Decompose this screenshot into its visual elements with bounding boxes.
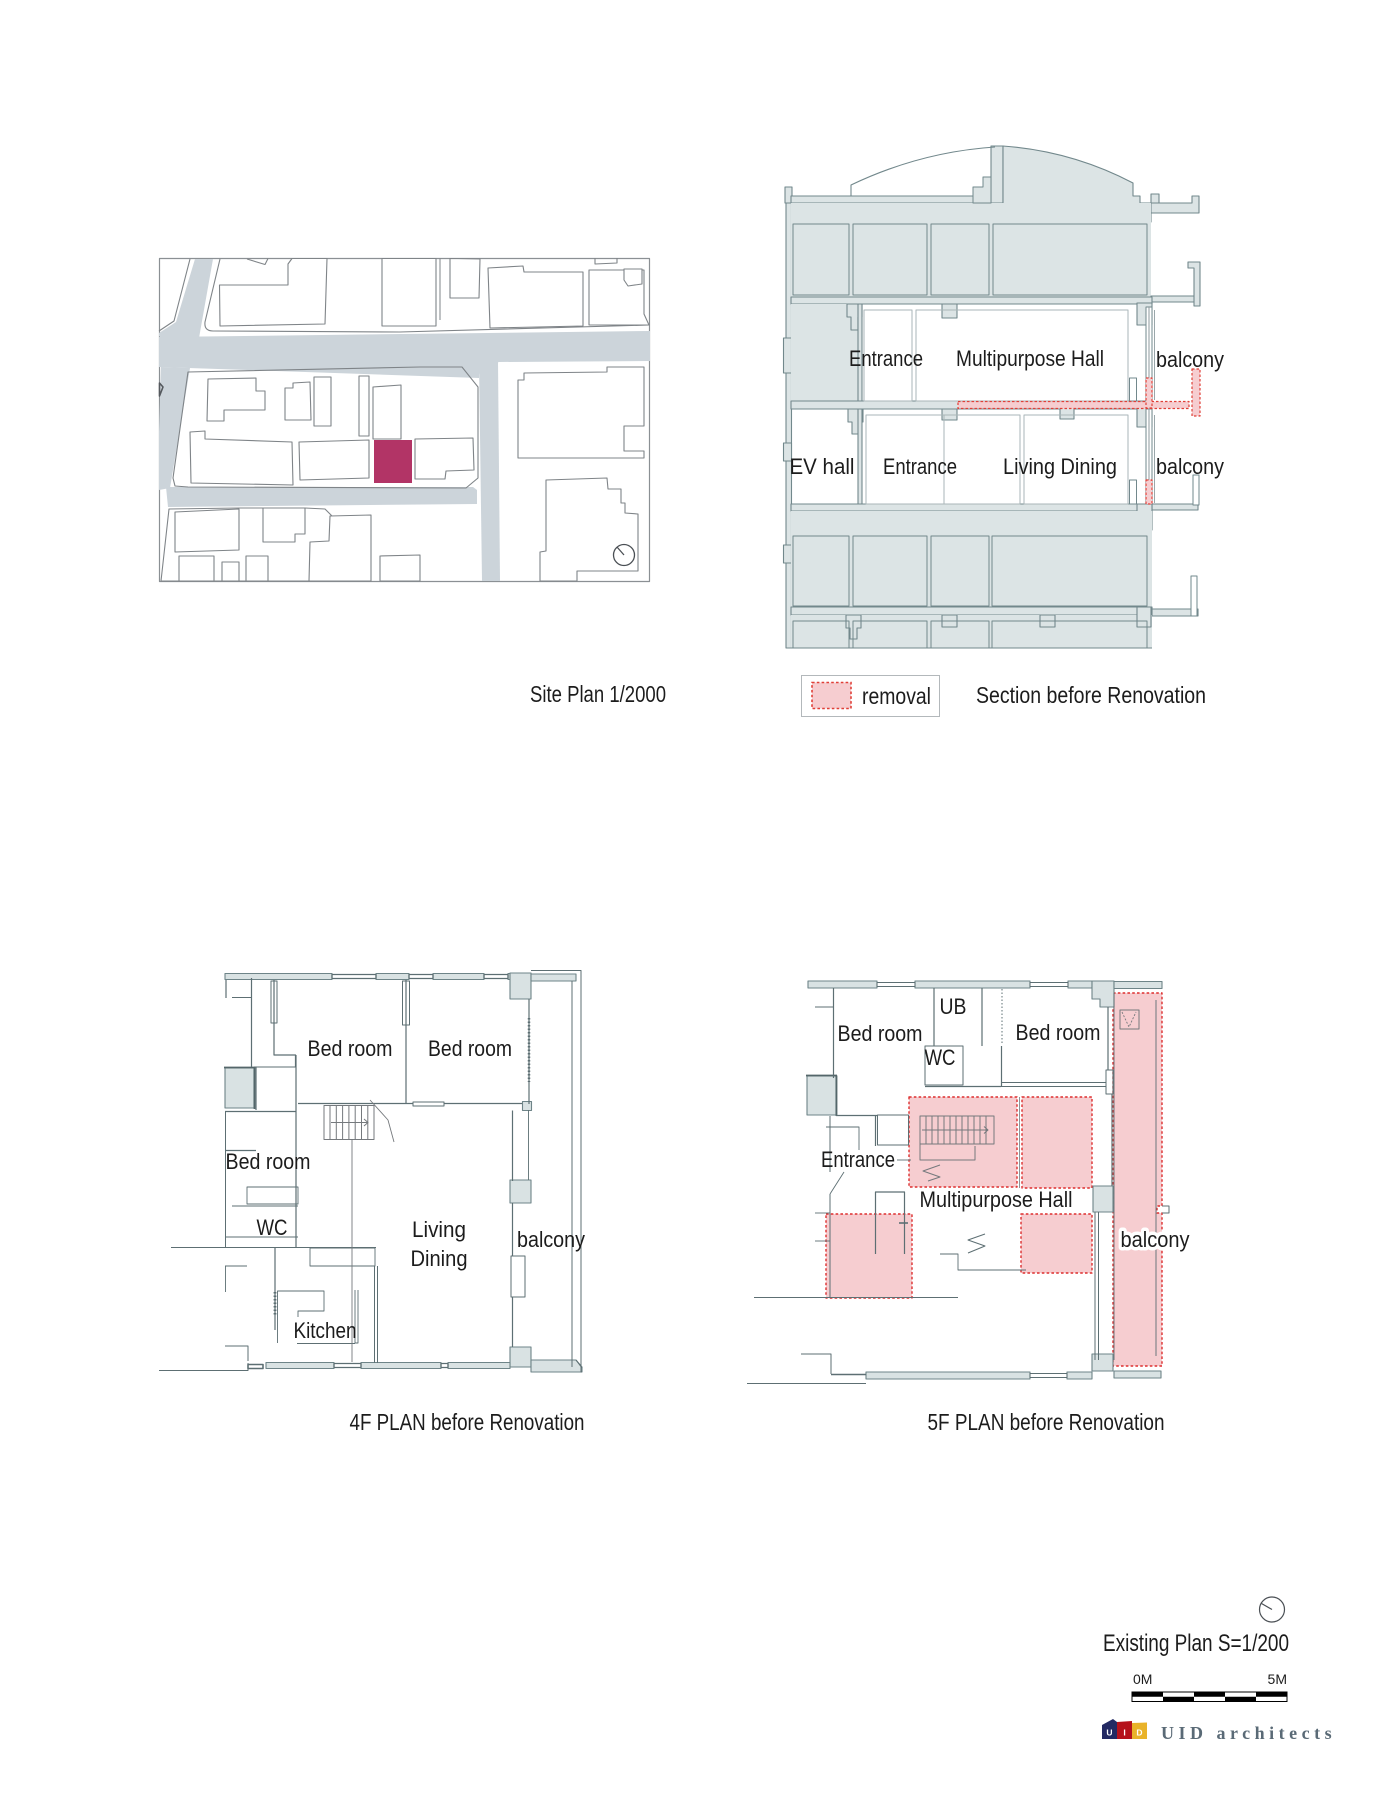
svg-text:5M: 5M [1268,1671,1287,1687]
svg-text:balcony: balcony [1156,347,1224,372]
svg-text:5F PLAN before Renovation: 5F PLAN before Renovation [928,1409,1165,1435]
svg-text:UID architects: UID architects [1161,1723,1336,1743]
svg-text:D: D [1136,1728,1142,1738]
svg-text:Bed room: Bed room [1016,1020,1101,1045]
svg-text:Entrance: Entrance [849,346,923,371]
svg-text:Multipurpose Hall: Multipurpose Hall [956,346,1104,371]
svg-text:UB: UB [940,994,967,1019]
svg-text:Dining: Dining [411,1246,468,1271]
svg-text:balcony: balcony [1156,454,1224,479]
svg-text:balcony: balcony [517,1227,585,1252]
svg-text:Multipurpose Hall: Multipurpose Hall [920,1187,1073,1212]
svg-text:Site Plan 1/2000: Site Plan 1/2000 [530,681,666,707]
svg-text:removal: removal [862,683,931,709]
svg-text:Section before Renovation: Section before Renovation [976,682,1206,708]
svg-text:Entrance: Entrance [821,1147,895,1172]
svg-text:Existing Plan S=1/200: Existing Plan S=1/200 [1103,1630,1289,1657]
svg-text:Living: Living [412,1217,466,1242]
svg-text:balcony: balcony [1121,1227,1190,1252]
svg-text:Bed room: Bed room [428,1036,512,1061]
svg-text:Bed room: Bed room [838,1021,923,1046]
svg-text:4F PLAN before Renovation: 4F PLAN before Renovation [350,1409,585,1435]
svg-text:Living Dining: Living Dining [1003,454,1117,479]
svg-text:Kitchen: Kitchen [294,1318,357,1343]
svg-text:I: I [1123,1728,1125,1738]
svg-text:Bed room: Bed room [308,1036,393,1061]
svg-text:Bed room: Bed room [226,1149,311,1174]
svg-text:0M: 0M [1133,1671,1152,1687]
svg-text:WC: WC [925,1045,956,1070]
svg-text:Entrance: Entrance [883,454,957,479]
svg-text:WC: WC [257,1215,288,1240]
svg-text:U: U [1106,1728,1112,1738]
svg-text:EV hall: EV hall [790,454,855,479]
